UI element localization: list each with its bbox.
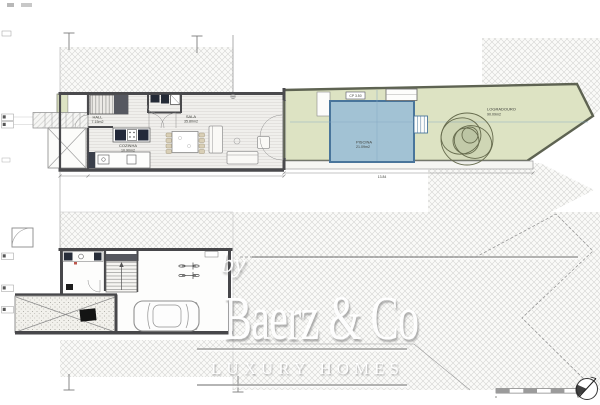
car-icon [134,301,199,331]
kitchen-island [113,128,150,142]
hall-area: 7.15m2 [92,120,104,124]
floor-plan-page: HALL 7.15m2 COZINHA 10.90m2 SALA 35.80m2… [0,0,600,405]
outdoor-pad [317,92,330,116]
title-block-marks [2,3,32,162]
ramp-marker [79,308,96,322]
pool-equipment-box [386,89,417,101]
living-label: SALA [186,114,197,119]
entry-porch [68,94,88,114]
hall-label: HALL [92,115,103,120]
floor-plan-drawing: HALL 7.15m2 COZINHA 10.90m2 SALA 35.80m2… [0,0,600,405]
scale-start: 0 [495,395,497,399]
garden-area: 90.09m2 [487,113,501,117]
garage-shelf [205,252,218,258]
pool-area: 21.09m2 [356,145,370,149]
upper-stairs [90,95,128,114]
street-door [12,228,33,247]
front-garden-strip [57,94,68,114]
elevation-label-boxes [2,114,41,313]
ceiling-lamp-icon [231,94,235,98]
garden-label: LOGRADOURO [487,107,516,112]
kitchen-area: 10.90m2 [121,149,135,153]
kitchen-counter [89,152,151,168]
width-dimension: 13.84 [378,175,387,179]
living-area: 35.80m2 [184,120,198,124]
upper-ramp [48,128,86,168]
driveway-ramp [15,296,116,333]
kitchen-label: COZINHA [119,143,137,148]
scale-bar: 0 5 [495,389,579,400]
lower-stairs [106,254,138,292]
pool-label: PISCINA [356,140,372,145]
upper-floor-plan: HALL 7.15m2 COZINHA 10.90m2 SALA 35.80m2… [33,84,593,179]
boiler-marker [74,262,77,265]
level-tag-box: CP 3.50 [346,92,365,99]
level-tag: CP 3.50 [349,94,361,98]
